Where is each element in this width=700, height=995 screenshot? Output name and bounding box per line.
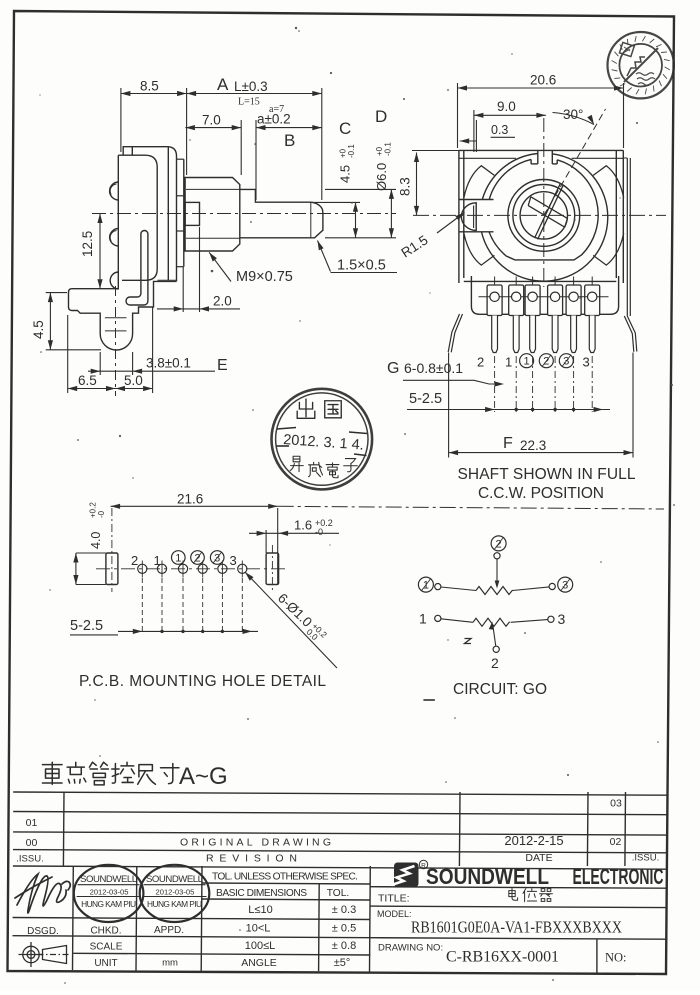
svg-text:C-RB16XX-0001: C-RB16XX-0001 (446, 949, 559, 966)
svg-text:L=15: L=15 (238, 97, 260, 108)
svg-text:3: 3 (558, 611, 566, 627)
svg-text:DRAWING NO:: DRAWING NO: (378, 943, 443, 954)
svg-text:1: 1 (154, 553, 161, 568)
svg-text:G: G (387, 360, 399, 377)
svg-text:UNIT: UNIT (94, 958, 117, 969)
svg-text:E: E (217, 357, 228, 374)
svg-text:-0: -0 (315, 527, 323, 537)
svg-text:1: 1 (524, 356, 530, 368)
svg-text:BASIC DIMENSIONS: BASIC DIMENSIONS (216, 888, 307, 899)
svg-text:± 0.8: ± 0.8 (332, 940, 356, 952)
svg-text:8.5: 8.5 (140, 79, 159, 94)
svg-text:-0: -0 (97, 510, 106, 518)
svg-text:M9×0.75: M9×0.75 (236, 269, 293, 285)
svg-text:NO:: NO: (605, 951, 627, 965)
svg-text:1: 1 (175, 553, 181, 565)
svg-text:A~G: A~G (179, 763, 228, 790)
svg-text:SOUNDWELL: SOUNDWELL (80, 874, 138, 885)
svg-text:-0.1: -0.1 (347, 144, 356, 158)
svg-text:Ø6.0: Ø6.0 (374, 163, 389, 191)
svg-text:CHKD.: CHKD. (90, 926, 121, 937)
svg-text:CIRCUIT: GO: CIRCUIT: GO (453, 681, 547, 698)
svg-text:6.5: 6.5 (78, 373, 97, 388)
svg-text:6-0.8±0.1: 6-0.8±0.1 (404, 360, 463, 376)
svg-text:5-2.5: 5-2.5 (70, 618, 103, 634)
svg-text:.ISSU.: .ISSU. (632, 853, 659, 864)
svg-text:HUNG KAM PIU: HUNG KAM PIU (81, 899, 136, 909)
svg-text:APPD.: APPD. (154, 925, 184, 936)
svg-text:B: B (284, 131, 295, 150)
svg-text:02: 02 (610, 836, 622, 848)
svg-text:12.5: 12.5 (80, 231, 95, 257)
svg-text:A: A (217, 75, 229, 94)
svg-text:MODEL:: MODEL: (377, 909, 412, 919)
svg-text:±5°: ±5° (334, 957, 351, 969)
svg-text:TITLE:: TITLE: (378, 893, 410, 905)
svg-text:2: 2 (491, 655, 499, 671)
svg-text:1: 1 (505, 355, 512, 370)
svg-text:HUNG KAM PIU: HUNG KAM PIU (147, 899, 202, 909)
svg-text:ANGLE: ANGLE (241, 957, 277, 969)
svg-text:TOL.: TOL. (327, 888, 349, 899)
svg-text:00: 00 (26, 837, 38, 849)
svg-text:0.3: 0.3 (491, 123, 508, 137)
svg-text:P.C.B. MOUNTING HOLE DETAIL: P.C.B. MOUNTING HOLE DETAIL (79, 673, 326, 690)
svg-text:8.3: 8.3 (398, 177, 413, 196)
svg-text:1.5×0.5: 1.5×0.5 (337, 258, 386, 274)
svg-text:DSGD.: DSGD. (27, 926, 59, 937)
svg-text:4.0: 4.0 (89, 532, 103, 549)
svg-text:± 0.5: ± 0.5 (332, 923, 356, 935)
svg-text:2: 2 (477, 355, 484, 370)
svg-text:SOUNDWELL: SOUNDWELL (426, 864, 549, 889)
svg-text:2.0: 2.0 (213, 294, 232, 309)
svg-text:30°: 30° (563, 107, 583, 122)
svg-text:5.0: 5.0 (124, 373, 143, 388)
svg-text:01: 01 (26, 817, 38, 829)
svg-text:L±0.3: L±0.3 (234, 79, 268, 94)
svg-text:a±0.2: a±0.2 (257, 112, 291, 127)
svg-text:21.6: 21.6 (177, 492, 203, 507)
svg-text:3: 3 (230, 553, 237, 568)
svg-text:1.6: 1.6 (294, 518, 312, 533)
svg-text:03: 03 (610, 798, 622, 810)
svg-text:22.3: 22.3 (520, 438, 546, 453)
svg-text:F: F (503, 435, 513, 452)
svg-text:-0.1: -0.1 (384, 142, 393, 156)
svg-text:3: 3 (583, 355, 590, 370)
svg-text:2012-2-15: 2012-2-15 (504, 833, 563, 848)
svg-text:4.5: 4.5 (31, 320, 46, 339)
svg-text:SOUNDWELL: SOUNDWELL (146, 874, 204, 885)
svg-text:10<L: 10<L (246, 923, 271, 935)
svg-text:D: D (375, 107, 387, 126)
svg-text:TOL. UNLESS OTHERWISE SPEC.: TOL. UNLESS OTHERWISE SPEC. (212, 872, 358, 883)
svg-text:7.0: 7.0 (202, 113, 221, 128)
svg-text:± 0.3: ± 0.3 (332, 904, 356, 916)
svg-text:ELECTRONIC: ELECTRONIC (573, 864, 664, 889)
svg-text:4.5: 4.5 (338, 165, 353, 183)
svg-text:1: 1 (419, 611, 427, 627)
svg-text:2012-03-05: 2012-03-05 (156, 887, 195, 896)
svg-text:2012-03-05: 2012-03-05 (90, 887, 129, 896)
svg-text:ORIGINAL DRAWING: ORIGINAL DRAWING (180, 837, 331, 849)
svg-text:C: C (339, 119, 351, 138)
svg-text:DATE: DATE (525, 852, 552, 864)
svg-text:20.6: 20.6 (530, 73, 556, 88)
svg-text:9.0: 9.0 (497, 99, 516, 114)
svg-text:5-2.5: 5-2.5 (409, 391, 442, 407)
svg-text:.ISSU.: .ISSU. (16, 854, 43, 865)
svg-text:L≤10: L≤10 (248, 904, 272, 916)
svg-text:100≤L: 100≤L (245, 940, 276, 952)
svg-text:RB1601G0E0A-VA1-FBXXXBXXX: RB1601G0E0A-VA1-FBXXXBXXX (411, 918, 622, 937)
svg-text:C.C.W. POSITION: C.C.W. POSITION (478, 485, 604, 502)
svg-text:SHAFT SHOWN IN FULL: SHAFT SHOWN IN FULL (458, 466, 636, 483)
svg-text:SCALE: SCALE (90, 942, 123, 953)
svg-text:mm: mm (162, 958, 178, 969)
svg-text:2: 2 (131, 553, 138, 568)
